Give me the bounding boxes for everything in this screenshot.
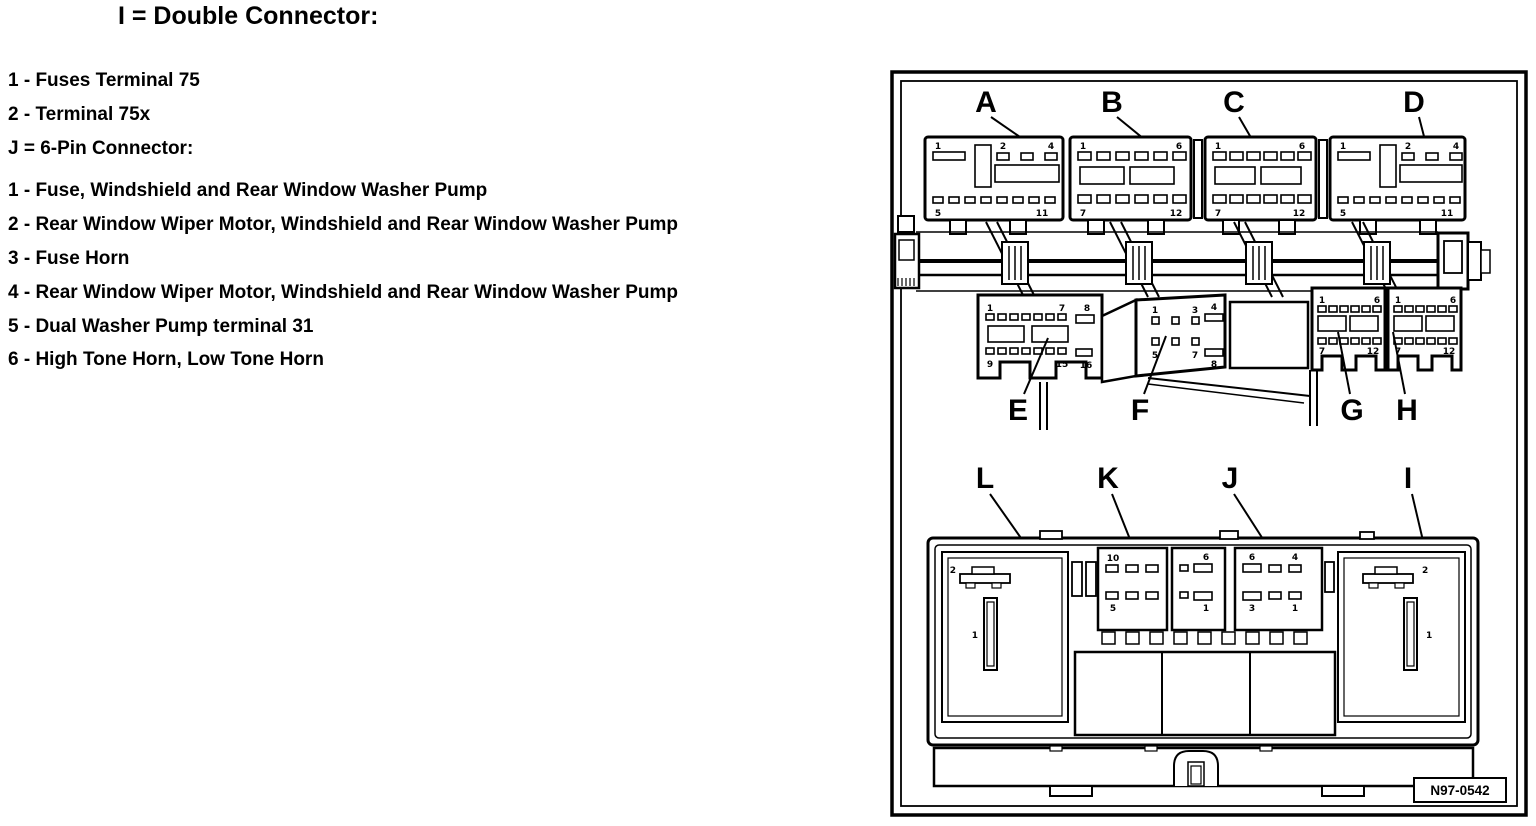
pin-label: 5: [1110, 604, 1116, 614]
legend-header-6pin-connector: J = 6-Pin Connector:: [8, 138, 193, 160]
bottom-view: L K J I: [928, 462, 1506, 802]
pin-label: 5: [935, 209, 941, 219]
connector-label-k: K: [1097, 462, 1119, 495]
connector-block-mid: 6 1: [1172, 548, 1225, 630]
connector-block-c: 1 6 7 12: [1205, 137, 1316, 220]
pin-label: 8: [1084, 304, 1090, 314]
pin-label: 7: [1319, 347, 1325, 357]
pin-label: 2: [1405, 142, 1411, 152]
pin-label: 3: [1249, 604, 1255, 614]
pin-label: 1: [1215, 142, 1221, 152]
legend-line: 6 - High Tone Horn, Low Tone Horn: [8, 349, 324, 371]
pin-label: 15: [1056, 360, 1069, 370]
pin-label: 1: [1340, 142, 1346, 152]
pin-label: 1: [1203, 604, 1209, 614]
connector-label-h: H: [1396, 394, 1418, 427]
legend-line: 2 - Terminal 75x: [8, 104, 150, 126]
pin-label: 1: [935, 142, 941, 152]
pin-label: 3: [1192, 306, 1198, 316]
coupler-rib-right: [1325, 562, 1334, 592]
pin-label: 6: [1176, 142, 1182, 152]
connector-label-f: F: [1131, 394, 1149, 427]
legend-header-double-connector: I = Double Connector:: [118, 2, 378, 31]
pin-label: 1: [1319, 296, 1325, 306]
relay-bay: [1230, 302, 1308, 368]
pin-pads: [986, 348, 1066, 354]
bottom-tray: [934, 746, 1473, 796]
legend-line: 3 - Fuse Horn: [8, 248, 129, 270]
connector-label-i: I: [1404, 462, 1412, 495]
pin-label: 6: [1450, 296, 1456, 306]
pin-pads: [986, 314, 1066, 320]
divider-strip: [1194, 140, 1202, 218]
pin-label: 12: [1170, 209, 1183, 219]
pin-label: 6: [1203, 553, 1209, 563]
side-plug: [1438, 233, 1490, 289]
connector-label-j: J: [1222, 462, 1239, 495]
pin-label: 8: [1211, 360, 1217, 370]
connector-label-l: L: [976, 462, 994, 495]
pin-label: 12: [1443, 347, 1456, 357]
pin-label: 1: [1080, 142, 1086, 152]
pin-label: 6: [1374, 296, 1380, 306]
pin-label: 1: [1152, 306, 1158, 316]
legend-line: 5 - Dual Washer Pump terminal 31: [8, 316, 314, 338]
pin-label: 11: [1441, 209, 1454, 219]
connector-label-d: D: [1403, 86, 1425, 119]
connector-label-c: C: [1223, 86, 1245, 119]
pin-label: 4: [1453, 142, 1459, 152]
connector-label-b: B: [1101, 86, 1123, 119]
pin-label: 1: [1395, 296, 1401, 306]
pin-label: 1: [972, 631, 978, 641]
pin-label: 7: [1215, 209, 1221, 219]
connector-block-g: 1 6 7 12: [1312, 288, 1385, 370]
connector-diagram: A B C D 1 2 4: [890, 70, 1528, 817]
connector-block-d: 1 2 4 5 11: [1330, 137, 1465, 220]
pin-label: 1: [1292, 604, 1298, 614]
pin-label: 4: [1292, 553, 1298, 563]
pin-label: 6: [1249, 553, 1255, 563]
pin-label: 7: [1192, 351, 1198, 361]
connector-block-f: 1 3 4 5 7 8: [1102, 295, 1225, 382]
bus-rail: [895, 216, 1490, 297]
pin-label: 2: [1000, 142, 1006, 152]
connector-block-e: 1 7 8 9 15 16: [978, 295, 1102, 378]
legend-line: 2 - Rear Window Wiper Motor, Windshield …: [8, 214, 678, 236]
pin-label: 11: [1036, 209, 1049, 219]
pin-label: 6: [1299, 142, 1305, 152]
page: I = Double Connector: 1 - Fuses Terminal…: [0, 0, 1536, 826]
pin-label: 4: [1211, 303, 1217, 313]
figure-number: N97-0542: [1430, 783, 1489, 798]
double-connector-i: 2 1: [1338, 552, 1465, 722]
terminal-teeth: [1102, 632, 1307, 644]
connector-block-k: 10 5: [1098, 548, 1167, 630]
pin-label: 4: [1048, 142, 1054, 152]
pin-label: 9: [987, 360, 993, 370]
figure-number-box: N97-0542: [1414, 778, 1506, 802]
connector-label-e: E: [1008, 394, 1028, 427]
legend-line: 1 - Fuse, Windshield and Rear Window Was…: [8, 180, 487, 202]
pin-label: 2: [950, 566, 956, 576]
legend-line: 1 - Fuses Terminal 75: [8, 70, 200, 92]
pin-label: 1: [1426, 631, 1432, 641]
pin-label: 1: [987, 304, 993, 314]
divider-strip: [1319, 140, 1327, 218]
connector-label-g: G: [1340, 394, 1363, 427]
double-connector-l: 2 1: [942, 552, 1068, 722]
pin-label: 12: [1367, 347, 1380, 357]
connector-block-b: 1 6 7 12: [1070, 137, 1191, 220]
lower-bay-band: [1075, 652, 1335, 735]
pin-label: 10: [1107, 554, 1120, 564]
pin-label: 16: [1080, 361, 1093, 371]
pin-label: 2: [1422, 566, 1428, 576]
pin-label: 7: [1080, 209, 1086, 219]
connector-block-a: 1 2 4 5 11: [925, 137, 1063, 220]
pin-label: 12: [1293, 209, 1306, 219]
connector-block-j: 6 4 3 1: [1235, 548, 1322, 630]
top-view: A B C D 1 2 4: [895, 86, 1490, 430]
connector-label-a: A: [975, 86, 997, 119]
legend-line: 4 - Rear Window Wiper Motor, Windshield …: [8, 282, 678, 304]
pin-label: 5: [1340, 209, 1346, 219]
pin-label: 7: [1059, 304, 1065, 314]
